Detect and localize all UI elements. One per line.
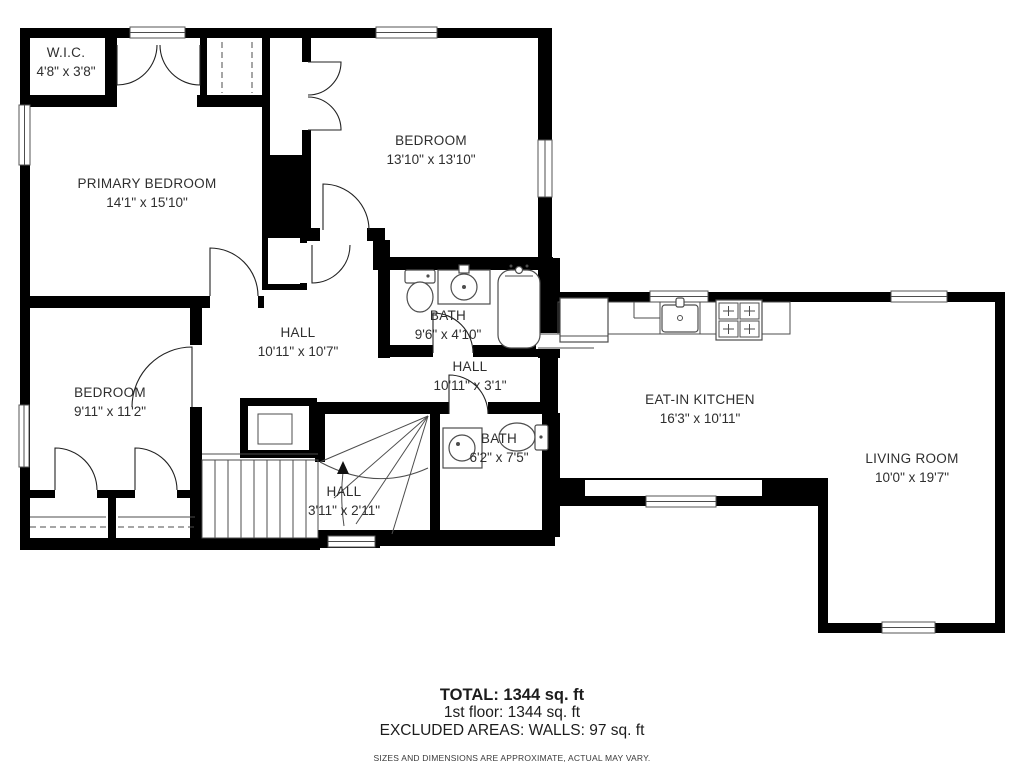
room-label-hall-1: HALL10'11" x 10'7" [258, 323, 339, 361]
door-swing-icon [308, 97, 341, 130]
room-label-hall-2: HALL10'11" x 3'1" [433, 357, 506, 395]
window-icon [891, 291, 947, 302]
first-floor-text: 1st floor: 1344 sq. ft [374, 704, 651, 722]
room-label-bath-2: BATH6'2" x 7'5" [469, 429, 528, 467]
fridge-icon [560, 298, 608, 342]
room-label-bedroom-3: BEDROOM9'11" x 11'2" [74, 383, 146, 421]
room-label-primary-bedroom: PRIMARY BEDROOM14'1" x 15'10" [77, 174, 216, 212]
door-swing-icon [135, 448, 177, 490]
kitchen-fixtures [558, 298, 790, 342]
door-swing-icon [55, 448, 97, 490]
sink-icon [438, 265, 490, 304]
bathtub-icon [498, 265, 540, 349]
room-label-hall-3: HALL3'11" x 2'11" [308, 482, 380, 520]
window-icon [376, 27, 437, 38]
window-icon [328, 536, 375, 547]
door-swing-icon [323, 184, 369, 230]
area-summary: TOTAL: 1344 sq. ft 1st floor: 1344 sq. f… [374, 686, 651, 767]
stove-icon [716, 300, 762, 340]
door-swing-icon [160, 45, 200, 85]
door-swing-icon [117, 45, 157, 85]
room-label-wic: W.I.C.4'8" x 3'8" [36, 43, 95, 81]
window-icon [130, 27, 185, 38]
room-label-bedroom-2: BEDROOM13'10" x 13'10" [386, 131, 475, 169]
room-label-bath-1: BATH9'6" x 4'10" [415, 306, 482, 344]
window-icon [646, 496, 716, 507]
door-swing-icon [210, 248, 258, 296]
window-icon [19, 405, 29, 467]
excluded-area-text: EXCLUDED AREAS: WALLS: 97 sq. ft [374, 722, 651, 740]
door-swing-icon [312, 245, 350, 283]
kitchen-sink-icon [662, 298, 698, 332]
disclaimer-text: SIZES AND DIMENSIONS ARE APPROXIMATE, AC… [374, 749, 651, 767]
window-icon [19, 105, 30, 165]
window-icon [538, 140, 552, 197]
room-label-kitchen: EAT-IN KITCHEN16'3" x 10'11" [645, 390, 755, 428]
floorplan-page: W.I.C.4'8" x 3'8" PRIMARY BEDROOM14'1" x… [0, 0, 1024, 768]
door-swing-icon [308, 62, 341, 95]
floorplan-drawing [0, 0, 1024, 768]
room-label-living-room: LIVING ROOM10'0" x 19'7" [865, 449, 958, 487]
total-area-text: TOTAL: 1344 sq. ft [374, 686, 651, 704]
window-icon [882, 622, 935, 633]
